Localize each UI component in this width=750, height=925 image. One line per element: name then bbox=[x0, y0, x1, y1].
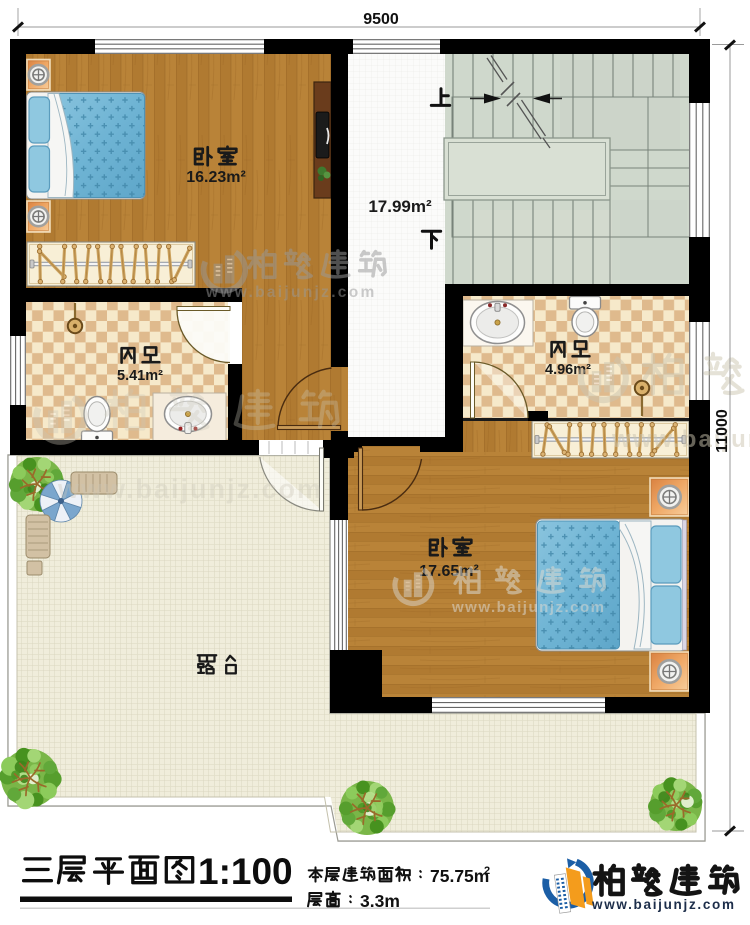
svg-text:16.23m²: 16.23m² bbox=[186, 169, 246, 186]
svg-text:www.baijunjz.com: www.baijunjz.com bbox=[205, 284, 377, 301]
svg-text:1:100: 1:100 bbox=[198, 851, 293, 892]
svg-text:2: 2 bbox=[484, 865, 490, 877]
svg-text:11000: 11000 bbox=[714, 409, 731, 453]
svg-text:17.99m²: 17.99m² bbox=[368, 197, 432, 216]
svg-text:www.baijunjz.com: www.baijunjz.com bbox=[57, 474, 323, 504]
svg-text:5.41m²: 5.41m² bbox=[117, 368, 163, 384]
svg-text:9500: 9500 bbox=[363, 11, 399, 28]
svg-text:3.3m: 3.3m bbox=[360, 891, 400, 911]
svg-text:www.baijunjz.com: www.baijunjz.com bbox=[451, 599, 605, 616]
svg-text:www.baijunjz.com: www.baijunjz.com bbox=[591, 897, 736, 912]
svg-text:75.75m: 75.75m bbox=[430, 866, 489, 886]
